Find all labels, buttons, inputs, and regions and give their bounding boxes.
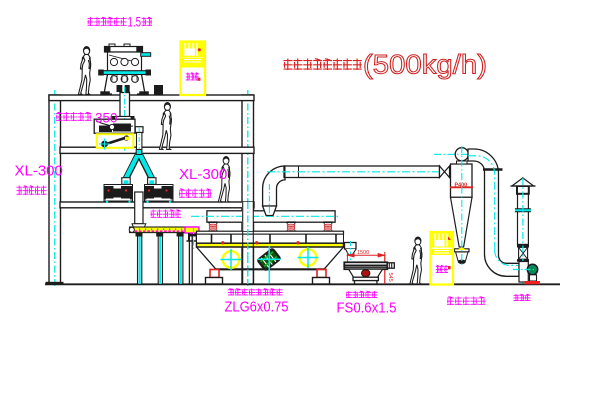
svg-text:1500: 1500 <box>357 250 369 256</box>
svg-text:P400: P400 <box>455 182 468 188</box>
svg-text:350: 350 <box>95 111 118 126</box>
svg-text:545: 545 <box>387 273 393 282</box>
svg-text:ZLG6x0.75: ZLG6x0.75 <box>225 300 289 316</box>
svg-text:XL-300: XL-300 <box>15 163 63 180</box>
svg-text:XL-300: XL-300 <box>179 166 227 183</box>
svg-text:(500kg/h): (500kg/h) <box>363 50 487 80</box>
svg-text:FS0.6x1.5: FS0.6x1.5 <box>337 301 397 317</box>
svg-text:1.5: 1.5 <box>128 15 142 30</box>
